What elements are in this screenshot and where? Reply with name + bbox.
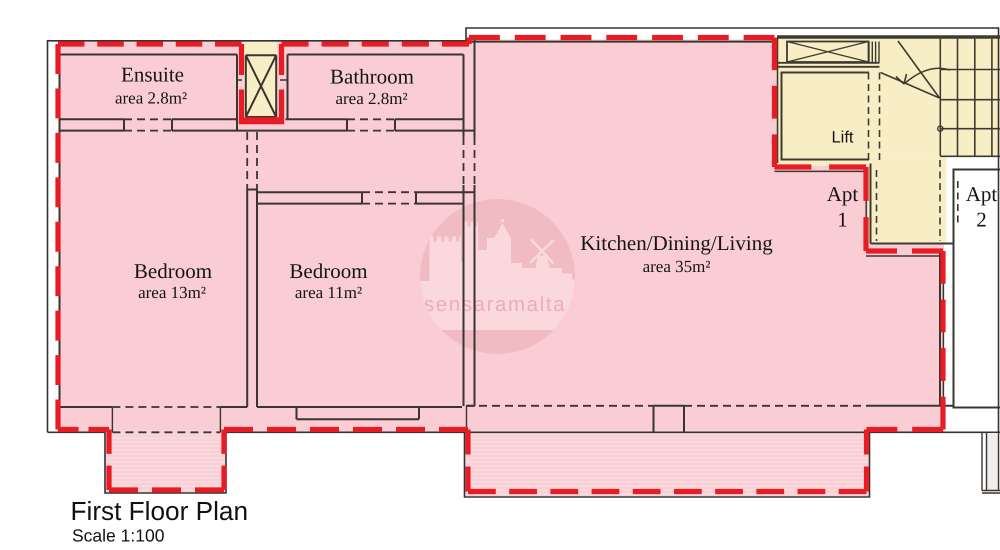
svg-text:1: 1 bbox=[837, 208, 848, 232]
svg-text:sensaramalta: sensaramalta bbox=[424, 293, 566, 316]
svg-text:area 11m²: area 11m² bbox=[295, 283, 362, 302]
svg-text:area 35m²: area 35m² bbox=[643, 257, 711, 276]
svg-text:Scale 1:100: Scale 1:100 bbox=[72, 526, 165, 546]
svg-text:area 2.8m²: area 2.8m² bbox=[335, 89, 407, 108]
svg-text:2: 2 bbox=[976, 208, 987, 232]
svg-text:Bedroom: Bedroom bbox=[134, 259, 212, 283]
svg-text:Bathroom: Bathroom bbox=[330, 65, 414, 89]
svg-text:Apt: Apt bbox=[827, 182, 859, 206]
svg-text:area 2.8m²: area 2.8m² bbox=[115, 89, 187, 108]
svg-text:Ensuite: Ensuite bbox=[121, 63, 184, 87]
svg-text:First Floor Plan: First Floor Plan bbox=[71, 496, 249, 526]
svg-text:Kitchen/Dining/Living: Kitchen/Dining/Living bbox=[580, 231, 773, 255]
svg-text:Lift: Lift bbox=[831, 129, 853, 147]
svg-text:Apt: Apt bbox=[966, 182, 998, 206]
svg-text:area 13m²: area 13m² bbox=[138, 283, 206, 302]
svg-text:Bedroom: Bedroom bbox=[289, 259, 367, 283]
